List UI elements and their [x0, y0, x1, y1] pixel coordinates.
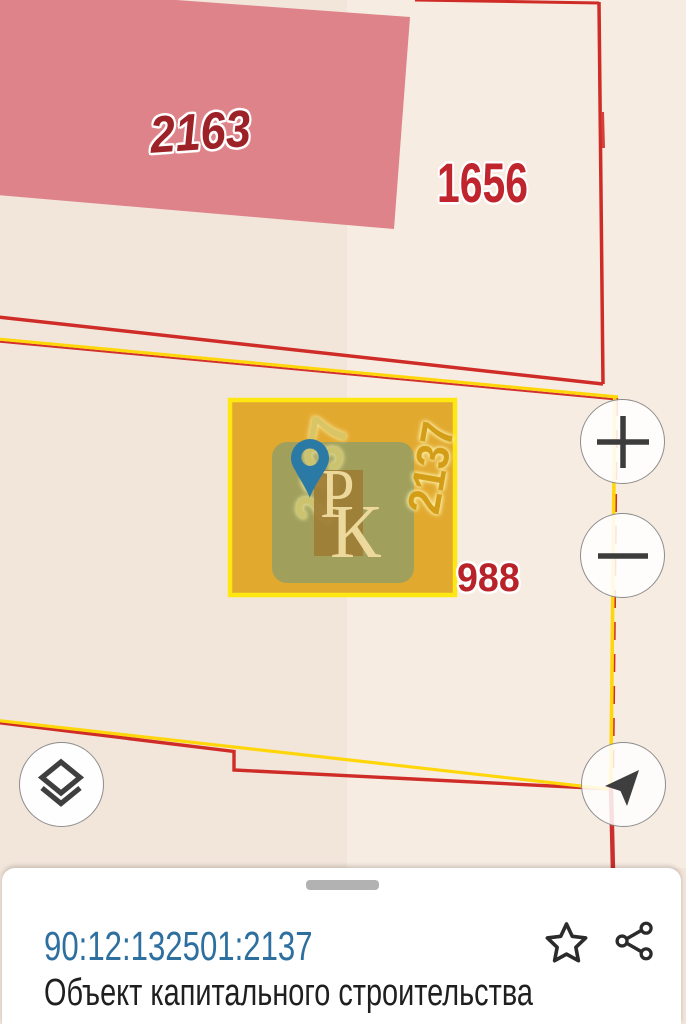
svg-text:К: К: [330, 490, 381, 574]
